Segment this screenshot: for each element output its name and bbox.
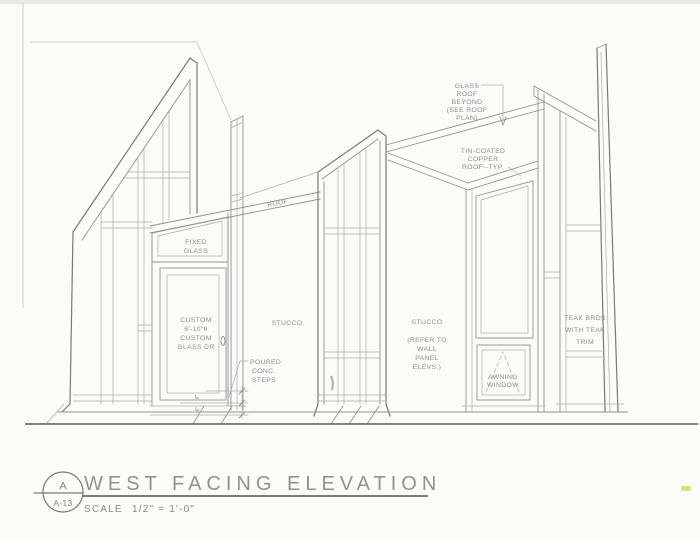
drawing-title: WEST FACING ELEVATION: [84, 473, 441, 495]
paper: [0, 0, 700, 541]
stucco-right-label: PANEL: [415, 355, 439, 362]
stucco-right-label: (REFER TO: [407, 337, 447, 344]
stucco-left-label: STUCCO: [272, 320, 303, 327]
glass-roof-label: PLAN): [456, 115, 478, 122]
scan-edge-top: [0, 0, 700, 4]
stucco-right-label: ELEVS.): [413, 364, 442, 371]
fixed-glass-label: GLASS: [184, 248, 209, 255]
glass-roof-label: ROOF: [456, 91, 477, 98]
copper-roof-label: TIN-COATED: [461, 148, 506, 155]
sheet-number: A-13: [53, 498, 72, 508]
glass-roof-label: (SEE ROOF: [447, 107, 488, 114]
teak-label: TRIM: [576, 339, 594, 346]
copper-roof-label: COPPER: [468, 156, 499, 163]
scan-artifact: [681, 486, 691, 491]
awning-window-label: WINDOW: [487, 382, 519, 389]
stucco-right-label: STUCCO: [412, 319, 443, 326]
scanned-elevation-sheet: ROOF FIXED GLASS CUSTOM 6'-10"h CUSTOM G…: [0, 0, 700, 541]
detail-letter: A: [59, 480, 66, 492]
riser-dim: 6": [195, 407, 201, 412]
poured-steps-label: STEPS: [252, 377, 276, 384]
glass-roof-label: BEYOND: [452, 99, 483, 106]
glass-roof-label: GLASS: [455, 83, 480, 90]
door-label: 6'-10"h: [184, 326, 208, 333]
teak-label: WITH TEAK: [565, 327, 605, 334]
door-label: GLASS DR: [177, 344, 214, 351]
stucco-right-label: WALL: [417, 346, 437, 353]
poured-steps-label: POURED: [250, 359, 281, 366]
awning-window-label: AWNING: [488, 374, 518, 381]
copper-roof-label: ROOF--TYP.: [462, 164, 504, 171]
door-label: CUSTOM: [180, 335, 211, 342]
fixed-glass-label: FIXED: [185, 239, 207, 246]
door-label: CUSTOM: [180, 317, 211, 324]
elevation-drawing: ROOF FIXED GLASS CUSTOM 6'-10"h CUSTOM G…: [0, 0, 700, 541]
scale-value: 1/2" = 1'-0": [132, 504, 195, 515]
riser-dim: 6": [195, 395, 201, 400]
teak-label: TEAK BRDS: [564, 315, 606, 322]
scale-label: SCALE: [84, 504, 123, 515]
poured-steps-label: CONC.: [252, 368, 276, 375]
